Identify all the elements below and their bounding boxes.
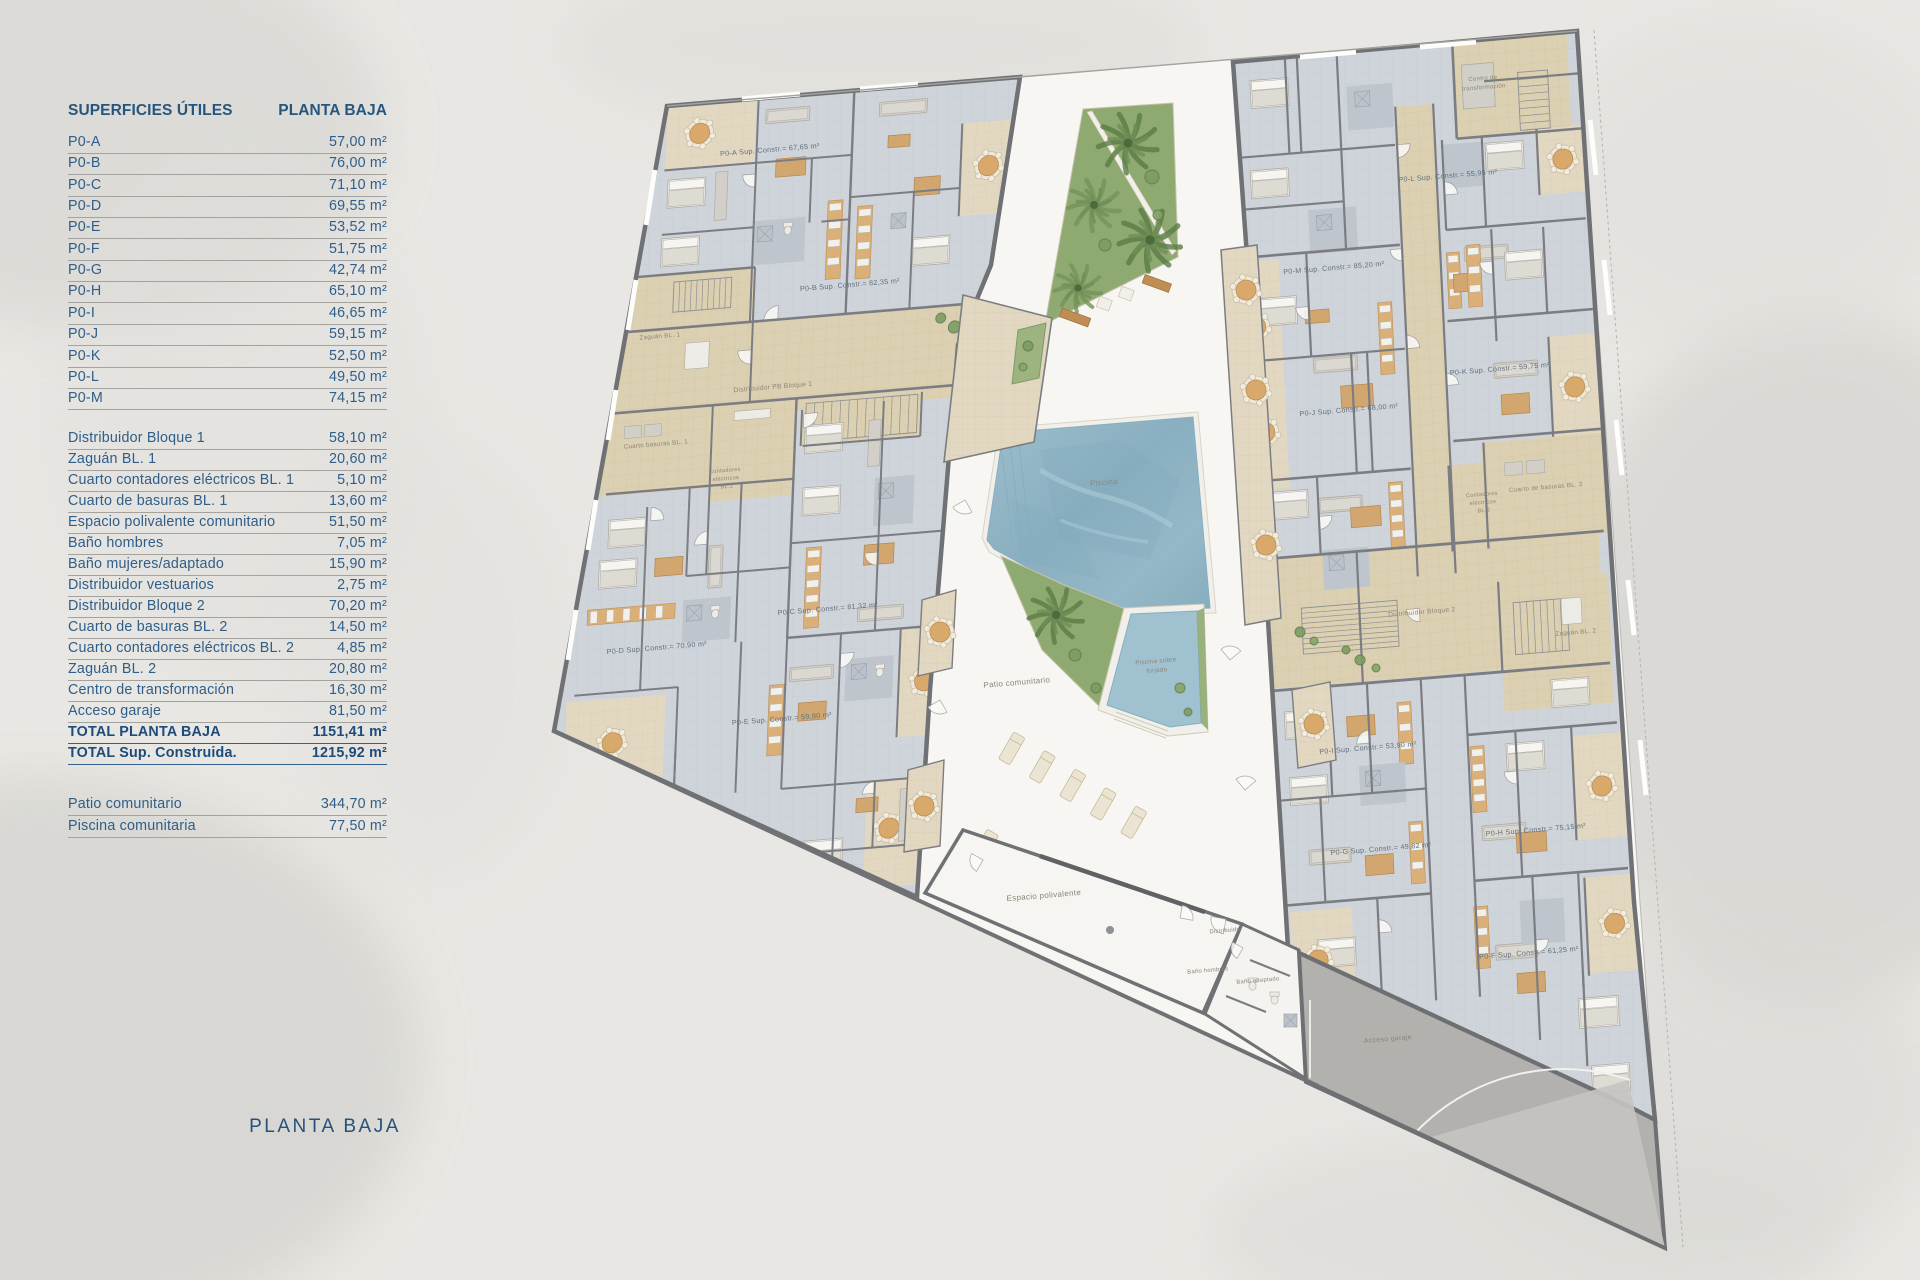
svg-text:BL.1: BL.1	[720, 483, 733, 490]
svg-text:BL.2: BL.2	[1477, 507, 1490, 514]
